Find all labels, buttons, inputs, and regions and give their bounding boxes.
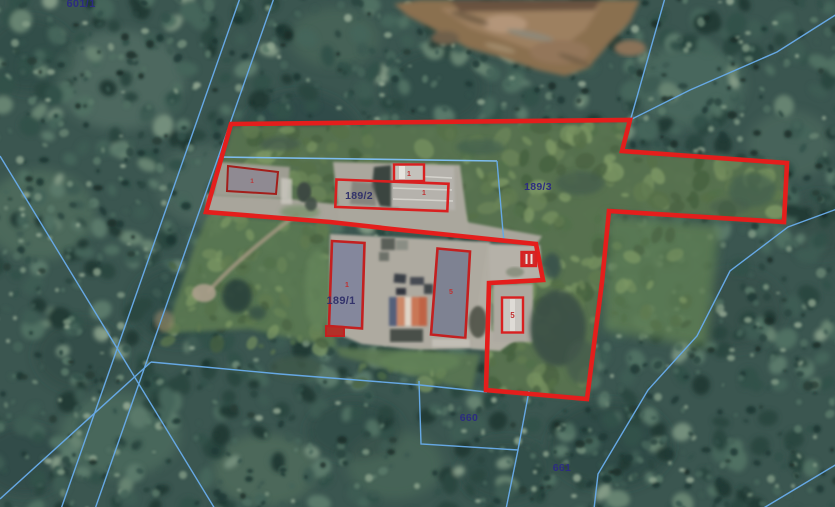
svg-text:1: 1 xyxy=(422,190,426,197)
svg-text:661: 661 xyxy=(553,462,571,474)
svg-text:660: 660 xyxy=(460,412,478,424)
svg-text:5: 5 xyxy=(449,289,453,296)
svg-text:189/2: 189/2 xyxy=(345,190,373,202)
svg-text:1: 1 xyxy=(345,282,349,289)
svg-text:5: 5 xyxy=(510,311,515,320)
svg-text:189/1: 189/1 xyxy=(326,295,355,307)
svg-text:601/1: 601/1 xyxy=(66,0,95,10)
svg-text:1: 1 xyxy=(407,171,411,178)
svg-text:189/3: 189/3 xyxy=(524,181,552,193)
svg-text:1: 1 xyxy=(250,178,254,185)
